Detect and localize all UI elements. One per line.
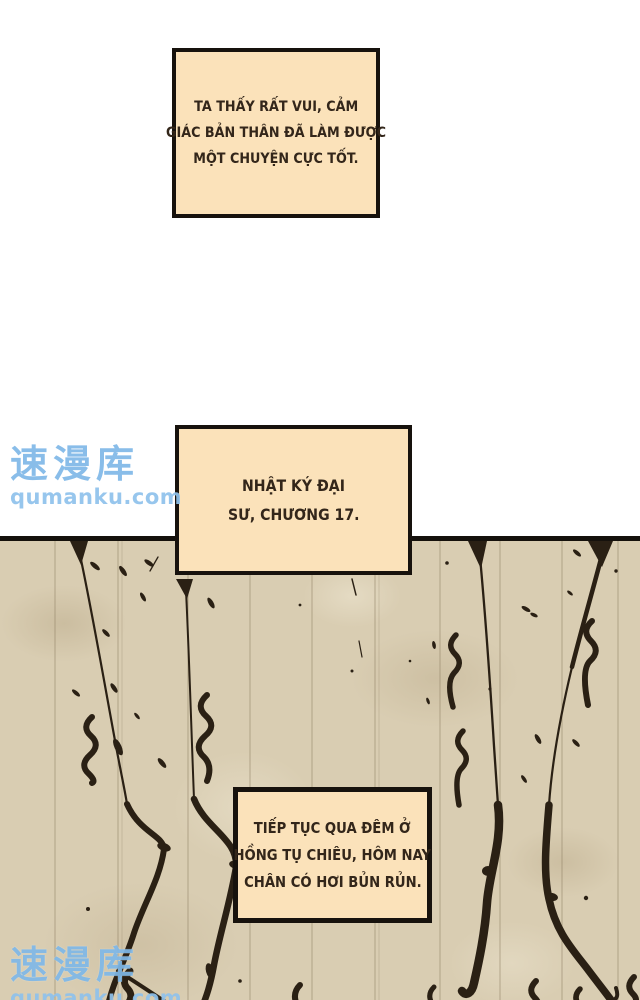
narration-box-diary-title: NHẬT KÝ ĐẠI SƯ, CHƯƠNG 17. bbox=[175, 425, 412, 575]
watermark-top: 速漫库 qumanku.com bbox=[10, 445, 182, 508]
watermark-site-url: qumanku.com bbox=[10, 487, 182, 508]
narration-box-diary-entry: TIẾP TỤC QUA ĐÊM Ở HỒNG TỤ CHIÊU, HÔM NA… bbox=[233, 787, 432, 923]
narration-line: MỘT CHUYỆN CỰC TỐT. bbox=[193, 146, 358, 172]
narration-box-happy-thought: TA THẤY RẤT VUI, CẢM GIÁC BẢN THÂN ĐÃ LÀ… bbox=[172, 48, 380, 218]
narration-line: NHẬT KÝ ĐẠI bbox=[242, 471, 345, 500]
ink-artwork bbox=[0, 541, 640, 1000]
narration-line: GIÁC BẢN THÂN ĐÃ LÀM ĐƯỢC bbox=[166, 120, 386, 146]
ink-strokes bbox=[70, 541, 636, 1000]
comic-panel bbox=[0, 536, 640, 1000]
narration-line: CHÂN CÓ HƠI BỦN RỦN. bbox=[244, 869, 422, 896]
narration-line: SƯ, CHƯƠNG 17. bbox=[228, 500, 360, 529]
narration-line: TIẾP TỤC QUA ĐÊM Ở bbox=[254, 815, 411, 842]
plank-lines bbox=[55, 541, 618, 1000]
narration-line: HỒNG TỤ CHIÊU, HÔM NAY bbox=[234, 842, 432, 869]
watermark-logo-text: 速漫库 bbox=[10, 445, 182, 485]
comic-page: TA THẤY RẤT VUI, CẢM GIÁC BẢN THÂN ĐÃ LÀ… bbox=[0, 0, 640, 1000]
narration-line: TA THẤY RẤT VUI, CẢM bbox=[194, 94, 358, 120]
